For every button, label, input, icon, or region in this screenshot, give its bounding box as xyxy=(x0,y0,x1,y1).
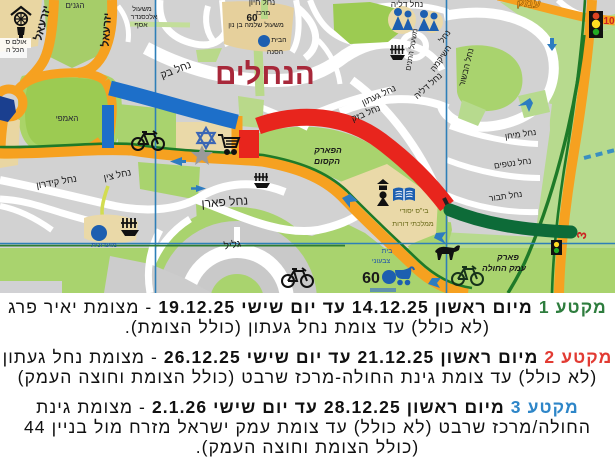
svg-text:עמק החולה: עמק החולה xyxy=(482,263,527,273)
svg-text:הבית: הבית xyxy=(271,37,286,44)
svg-text:נחל חיון: נחל חיון xyxy=(249,0,275,7)
svg-text:האמפי: האמפי xyxy=(56,114,79,123)
svg-text:הכל ה: הכל ה xyxy=(6,46,24,54)
svg-text:60: 60 xyxy=(362,270,380,287)
svg-text:הקסום: הקסום xyxy=(314,156,340,166)
svg-text:צבעוני: צבעוני xyxy=(372,258,390,265)
svg-text:יזרעאל: יזרעאל xyxy=(99,12,114,47)
svg-text:אולם ס: אולם ס xyxy=(5,38,27,46)
svg-text:מועדונית: מועדונית xyxy=(91,242,117,249)
svg-text:משעול: משעול xyxy=(132,5,152,13)
svg-text:משעול שלמה בן נון: משעול שלמה בן נון xyxy=(228,21,284,29)
svg-text:הנחלים: הנחלים xyxy=(215,58,315,91)
svg-text:נחל דליה: נחל דליה xyxy=(391,0,423,9)
svg-text:הפארק: הפארק xyxy=(313,145,342,155)
svg-text:פארק: פארק xyxy=(496,252,519,262)
svg-text:10: 10 xyxy=(603,16,615,27)
svg-text:הסנה: הסנה xyxy=(267,49,283,56)
svg-text:בית: בית xyxy=(382,248,393,255)
svg-text:הגנים: הגנים xyxy=(66,1,85,10)
svg-text:מרכז: מרכז xyxy=(256,10,270,17)
svg-text:אסף: אסף xyxy=(134,22,148,29)
svg-text:ממלכתי דורות: ממלכתי דורות xyxy=(392,220,434,228)
svg-text:בי"ס יסודי: בי"ס יסודי xyxy=(400,208,429,215)
svg-text:אלכסנדר: אלכסנדר xyxy=(131,13,158,21)
